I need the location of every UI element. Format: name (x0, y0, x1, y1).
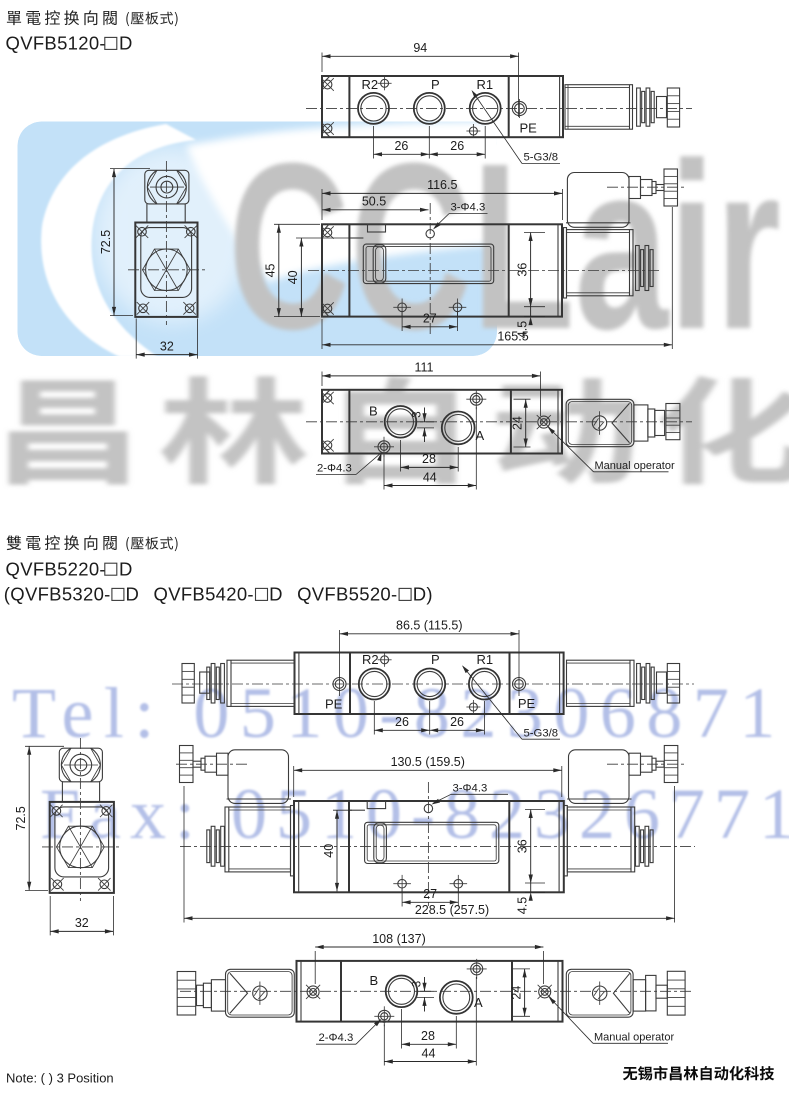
svg-text:44: 44 (423, 470, 437, 484)
svg-text:PE: PE (520, 121, 538, 136)
svg-text:45: 45 (264, 263, 278, 277)
svg-text:QVFB5120-: QVFB5120- (6, 33, 106, 54)
svg-text:27: 27 (423, 312, 437, 326)
svg-text:72.5: 72.5 (99, 230, 113, 254)
svg-text:Manual operator: Manual operator (594, 1031, 674, 1043)
svg-text:5-G3/8: 5-G3/8 (524, 152, 559, 164)
svg-text:40: 40 (322, 844, 336, 858)
svg-text:26: 26 (450, 715, 464, 729)
svg-text:D): D) (413, 584, 433, 605)
svg-text:R1: R1 (477, 652, 494, 667)
svg-text:228.5 (257.5): 228.5 (257.5) (415, 903, 489, 917)
svg-text:3: 3 (412, 981, 424, 987)
svg-text:B: B (369, 404, 378, 419)
svg-text:116.5: 116.5 (427, 178, 457, 192)
svg-text:26: 26 (394, 139, 408, 153)
svg-text:D: D (126, 584, 140, 605)
svg-text:108 (137): 108 (137) (372, 932, 426, 946)
svg-text:165.5: 165.5 (497, 330, 528, 344)
svg-text:32: 32 (75, 916, 89, 930)
svg-text:D: D (119, 33, 132, 54)
svg-text:27: 27 (423, 887, 437, 901)
svg-text:PE: PE (325, 697, 343, 712)
svg-text:86.5 (115.5): 86.5 (115.5) (396, 619, 462, 633)
svg-text:28: 28 (421, 1029, 435, 1043)
svg-text:D: D (119, 558, 132, 579)
svg-text:D: D (269, 584, 283, 605)
svg-text:R1: R1 (477, 77, 494, 92)
svg-text:QVFB5220-: QVFB5220- (6, 558, 106, 579)
svg-text:A: A (476, 428, 485, 443)
svg-text:24: 24 (511, 416, 525, 430)
svg-text:24: 24 (509, 986, 523, 1000)
svg-text:40: 40 (286, 270, 300, 284)
svg-text:94: 94 (413, 41, 427, 55)
svg-text:50.5: 50.5 (362, 195, 386, 209)
svg-text:3-Φ4.3: 3-Φ4.3 (453, 783, 488, 795)
svg-text:PE: PE (518, 696, 536, 711)
svg-text:(QVFB5320-: (QVFB5320- (4, 584, 111, 605)
svg-text:111: 111 (414, 361, 433, 375)
svg-text:A: A (474, 995, 483, 1010)
svg-text:130.5 (159.5): 130.5 (159.5) (391, 755, 465, 769)
svg-text:4.5: 4.5 (516, 897, 530, 914)
svg-text:26: 26 (395, 715, 409, 729)
svg-text:72.5: 72.5 (14, 806, 28, 830)
svg-text:QVFB5420-: QVFB5420- (154, 584, 254, 605)
svg-text:B: B (370, 973, 379, 988)
svg-text:44: 44 (422, 1046, 436, 1060)
svg-text:Note: ( ) 3 Position: Note: ( ) 3 Position (6, 1071, 114, 1086)
svg-text:5-G3/8: 5-G3/8 (524, 727, 559, 739)
svg-text:2-Φ4.3: 2-Φ4.3 (319, 1032, 354, 1044)
svg-text:R2: R2 (362, 652, 379, 667)
svg-text:3: 3 (412, 411, 424, 417)
svg-text:28: 28 (422, 452, 436, 466)
svg-text:36: 36 (515, 263, 529, 277)
svg-text:36: 36 (516, 839, 530, 853)
svg-text:P: P (431, 77, 440, 92)
svg-text:2-Φ4.3: 2-Φ4.3 (317, 463, 352, 475)
svg-text:QVFB5520-: QVFB5520- (297, 584, 397, 605)
svg-text:32: 32 (160, 339, 174, 353)
svg-text:P: P (431, 652, 440, 667)
svg-text:R2: R2 (362, 77, 379, 92)
svg-text:Manual operator: Manual operator (595, 460, 675, 472)
svg-text:Fax: 0510-82326771: Fax: 0510-82326771 (40, 774, 789, 854)
svg-text:3-Φ4.3: 3-Φ4.3 (451, 202, 486, 214)
svg-text:26: 26 (450, 139, 464, 153)
